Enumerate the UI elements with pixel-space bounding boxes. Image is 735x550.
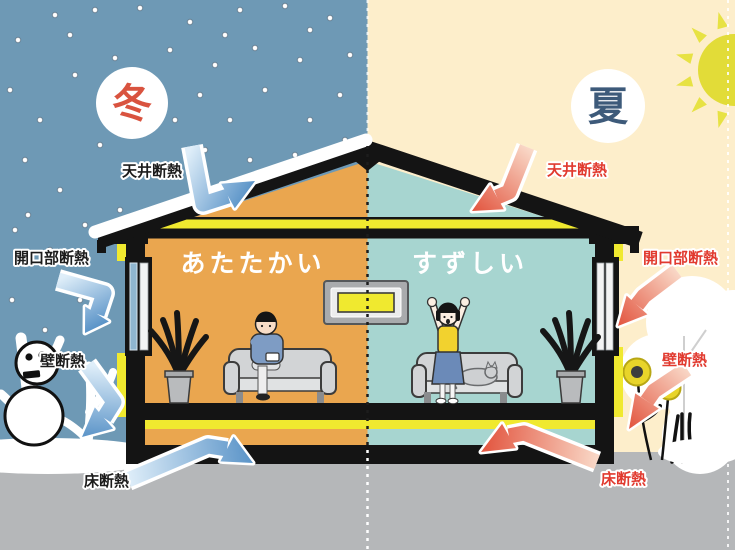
summer-room-label: すずしい [412, 250, 528, 278]
snowflake-dot [112, 55, 117, 60]
ceiling-board [145, 229, 595, 239]
insulation-sample-frame [324, 281, 408, 324]
snowflake-dot [117, 207, 122, 212]
snowflake-dot [92, 7, 97, 12]
right-wall-insulation-bottom [614, 347, 623, 417]
snowflake-dot [77, 297, 82, 302]
snowflake-dot [52, 12, 57, 17]
snowflake-dot [347, 52, 352, 57]
snowflake-dot [247, 157, 252, 162]
summer-ceiling-label: 天井断熱 [547, 161, 607, 179]
ceiling-line [145, 217, 595, 220]
snowflake-dot [187, 19, 192, 24]
summer-season-label: 夏 [588, 85, 629, 129]
snowman-eye [25, 353, 32, 360]
snowflake-dot [25, 212, 30, 217]
snowflake-dot [307, 117, 312, 122]
insulation-illustration: 天井断熱 開口部断熱 壁断熱 床断熱 天井断熱 開口部断熱 壁断熱 床断熱 あた… [0, 0, 735, 550]
snowflake-dot [167, 47, 172, 52]
summer-wall-label: 壁断熱 [662, 351, 707, 369]
snowflake-dot [15, 37, 20, 42]
summer-floor-label: 床断熱 [601, 470, 646, 488]
winter-floor-cavity [145, 429, 368, 445]
winter-room-label: あたたかい [180, 250, 325, 278]
left-window [125, 257, 152, 356]
winter-season-label: 冬 [112, 82, 152, 126]
snowflake-dot [57, 187, 62, 192]
snowflake-dot [67, 32, 72, 37]
snowflake-dot [282, 3, 287, 8]
snowflake-dot [172, 117, 177, 122]
snowflake-dot [262, 87, 267, 92]
snowflake-dot [327, 15, 332, 20]
snowflake-dot [237, 7, 242, 12]
winter-ceiling-label: 天井断熱 [122, 162, 182, 180]
snowflake-dot [9, 297, 14, 302]
snowflake-dot [97, 142, 102, 147]
snowflake-dot [222, 32, 227, 37]
snowflake-dot [212, 62, 217, 67]
summer-opening-label: 開口部断熱 [643, 249, 718, 267]
snowflake-dot [42, 327, 47, 332]
snowflake-dot [82, 222, 87, 227]
winter-wall-label: 壁断熱 [40, 352, 85, 370]
snowflake-dot [197, 92, 202, 97]
snowflake-dot [137, 5, 142, 10]
winter-opening-label: 開口部断熱 [14, 249, 89, 267]
snowflake-dot [12, 227, 17, 232]
snowflake-dot [307, 27, 312, 32]
snowflake-dot [37, 117, 42, 122]
snowflake-dot [227, 117, 232, 122]
snowflake-dot [252, 45, 257, 50]
snowflake-dot [22, 157, 27, 162]
snowflake-dot [337, 92, 342, 97]
ceiling-insulation [145, 220, 595, 229]
snowflake-dot [72, 72, 77, 77]
winter-floor-label: 床断熱 [84, 472, 129, 490]
snowflake-dot [7, 87, 12, 92]
snowflake-dot [297, 57, 302, 62]
